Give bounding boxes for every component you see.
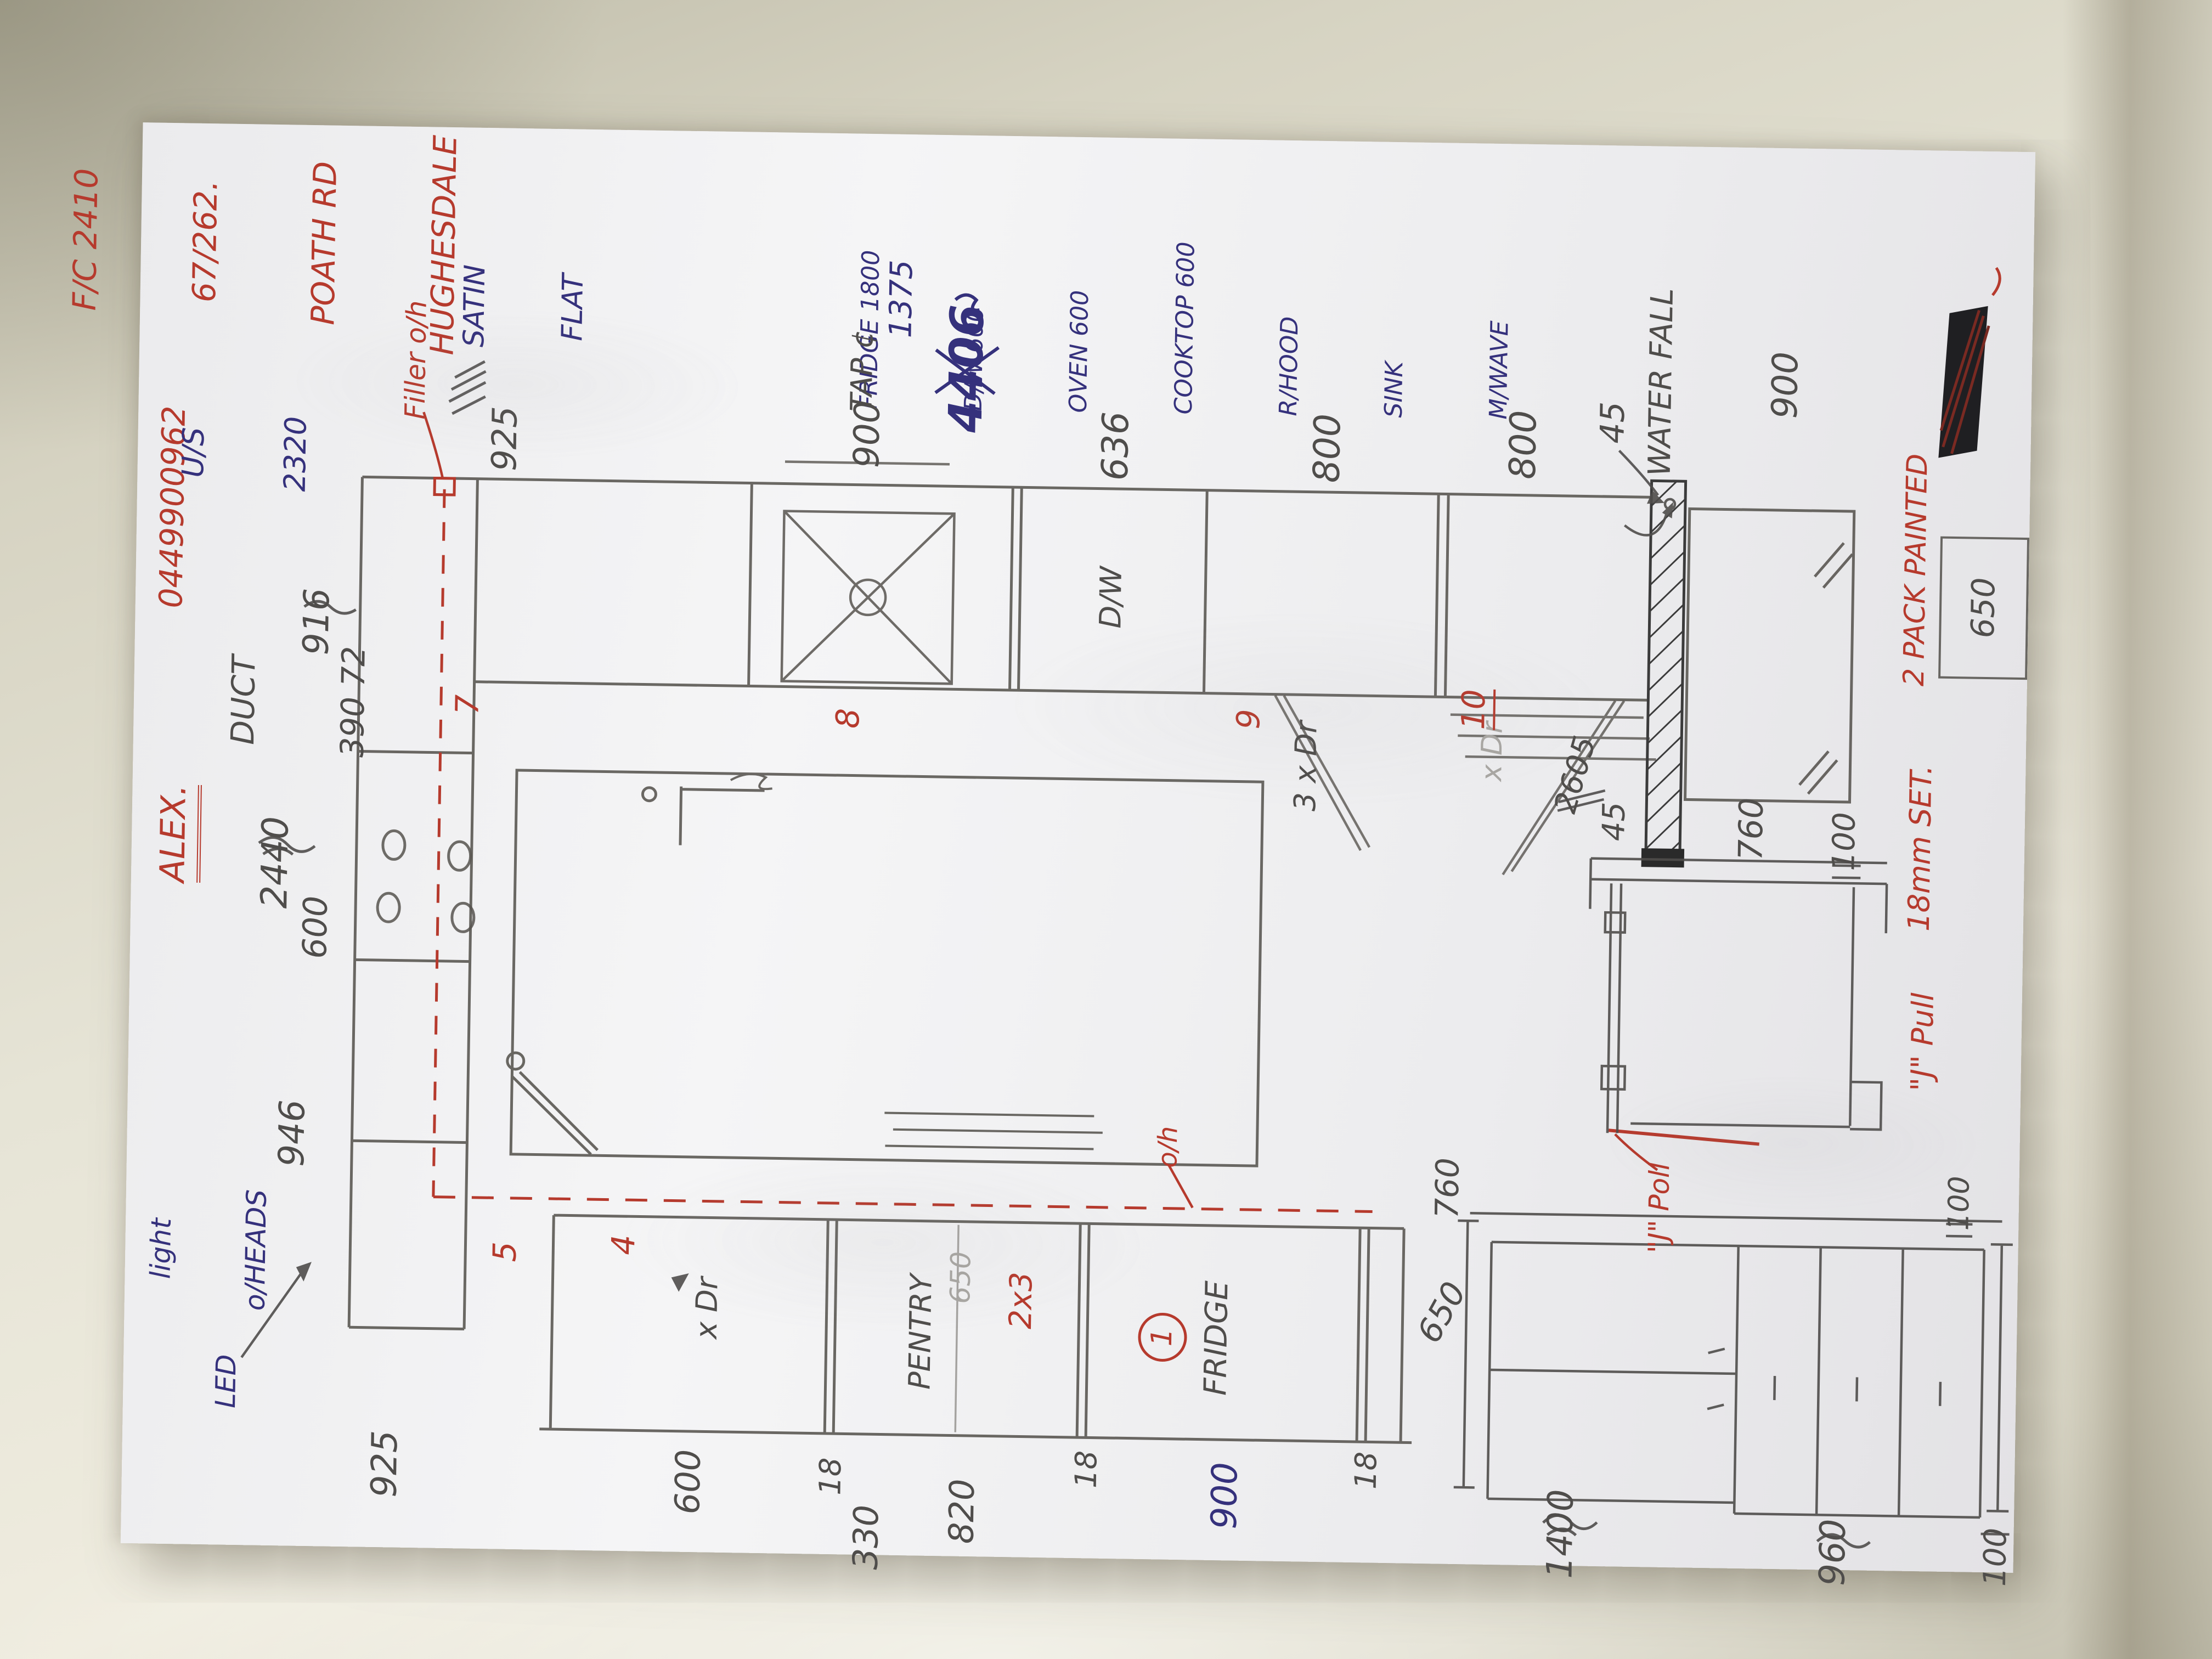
contact-line: POATH RD xyxy=(302,133,346,353)
cabinet-elevation xyxy=(1453,1213,2013,1518)
wall-length-dim: 2440 xyxy=(253,816,297,909)
table-edge-shadow xyxy=(2063,0,2212,1659)
overhead-note: o/h xyxy=(1153,1126,1183,1168)
cab-number-8: 8 xyxy=(830,708,866,729)
base-600-dim: 600 xyxy=(668,1449,708,1514)
sink-cab-dim: 900 xyxy=(847,400,889,468)
left-depth-dim: 600 xyxy=(296,895,335,959)
dim-925-top: 925 xyxy=(484,406,524,471)
cab-number-5: 5 xyxy=(487,1242,523,1262)
fridge-width-dim: 900 xyxy=(1205,1462,1246,1530)
elev-960-dim: 960 xyxy=(1813,1519,1854,1586)
cab-number-4: 4 xyxy=(605,1234,642,1255)
client-name: ALEX. xyxy=(153,784,193,882)
appliance-item: M/WAVE xyxy=(1481,246,1519,420)
dim-925-bottom: 925 xyxy=(364,1430,406,1498)
led-line: light xyxy=(145,1188,178,1310)
drawer-stack-label: 3 x Dr xyxy=(1288,721,1324,811)
cab-number-7: 7 xyxy=(449,695,486,715)
dim-636: 636 xyxy=(1094,411,1137,481)
detail-760-dim: 760 xyxy=(1732,797,1771,861)
duct-note: DUCT 390 72 xyxy=(151,643,446,759)
elev-100-bottom-dim: 100 xyxy=(1978,1527,2014,1587)
pantry-label: PENTRY xyxy=(902,1274,938,1390)
j-pull-note: "J" Pull xyxy=(1905,992,1940,1092)
island-outline xyxy=(506,770,1263,1166)
filler-note: Filler o/h xyxy=(399,300,433,420)
underside-line: 2320 xyxy=(278,416,313,492)
contact-line: 67/262. xyxy=(183,131,227,352)
underside-line: U/S xyxy=(176,414,211,490)
underside-note: U/S 2320 xyxy=(108,413,382,493)
duct-line: DUCT xyxy=(224,644,263,756)
pantry-2x3-note: 2x3 xyxy=(1003,1272,1040,1329)
appliance-item: SINK xyxy=(1376,245,1414,418)
led-line: o/HEADS xyxy=(239,1189,273,1311)
cab-number-10: 10 xyxy=(1455,689,1492,730)
waterfall-note: WATER FALL xyxy=(1643,288,1681,477)
dim-946: 946 xyxy=(272,1099,314,1167)
fridge-label: FRIDGE xyxy=(1198,1280,1235,1396)
elev-760-dim: 760 xyxy=(1429,1158,1466,1219)
filler-18-a: 18 xyxy=(813,1457,848,1496)
dim-820: 820 xyxy=(941,1479,981,1544)
pantry-depth-ghost: 650 xyxy=(945,1251,977,1304)
elev-1400-dim: 1400 xyxy=(1540,1489,1582,1579)
drawer-ghost-label: x Dr xyxy=(1476,721,1509,782)
filler-18-c: 18 xyxy=(1349,1452,1384,1490)
finish-line: SATIN xyxy=(458,264,492,348)
dishwasher-label: D/W xyxy=(1093,566,1128,629)
cab-number-9: 9 xyxy=(1230,709,1267,730)
base-drawer-label: x Dr xyxy=(690,1277,725,1340)
j-poll-note: "J" Poll xyxy=(1643,1163,1676,1254)
scribbled-word xyxy=(1938,267,2000,459)
duct-line: 390 72 xyxy=(334,646,373,758)
cabinet-section-detail xyxy=(1587,859,1887,1137)
plan-walls xyxy=(349,477,2029,1353)
plan-details xyxy=(778,462,1660,877)
elev-100-top-dim: 100 xyxy=(1943,1176,1976,1231)
tap-note: TAP ¢ xyxy=(844,330,879,412)
dim-800-b: 800 xyxy=(1502,410,1545,479)
led-note: light o/HEADS xyxy=(82,1187,336,1312)
panel-thickness-dim: 45 xyxy=(1594,402,1632,444)
photo-of-kitchen-sketch: { "annotations": { "contact": ["F/C 2410… xyxy=(0,0,2212,1659)
column-650-dim: 650 xyxy=(1965,577,2002,639)
contact-line: F/C 2410 xyxy=(64,129,108,349)
appliance-item: COOKTOP 600 xyxy=(1166,241,1204,415)
appliance-item: D/W 600 xyxy=(956,238,994,411)
dim-330: 330 xyxy=(846,1504,886,1570)
appliance-list: FRIDGE 1800 D/W 600 OVEN 600 COOKTOP 600… xyxy=(781,235,1589,421)
base-run xyxy=(539,1215,1415,1443)
sink-symbol xyxy=(782,511,955,684)
sketch-paper: F/C 2410 67/262. POATH RD HUGHESDALE 044… xyxy=(121,122,2035,1573)
filler-18-b: 18 xyxy=(1069,1451,1104,1489)
pencil-arrows xyxy=(239,358,2028,1549)
dim-916: 916 xyxy=(297,588,338,656)
detail-45-dim: 45 xyxy=(1596,802,1633,841)
finish-line: FLAT xyxy=(556,266,590,349)
2pack-painted-note: 2 PACK PAINTED xyxy=(1898,453,1934,686)
18mm-set-note: 18mm SET. xyxy=(1902,765,1939,932)
detail-100-dim: 100 xyxy=(1826,812,1863,871)
cab-number-1-circled: 1 xyxy=(1146,1328,1179,1347)
appliance-item: OVEN 600 xyxy=(1061,240,1099,413)
dim-800-a: 800 xyxy=(1306,413,1349,483)
handle-circles xyxy=(377,831,475,932)
waterfall-panel xyxy=(1641,481,1690,867)
appliance-item: R/HOOD xyxy=(1271,243,1309,416)
tall-unit-dim: 900 xyxy=(1765,352,1807,419)
led-label: LED xyxy=(210,1354,242,1408)
